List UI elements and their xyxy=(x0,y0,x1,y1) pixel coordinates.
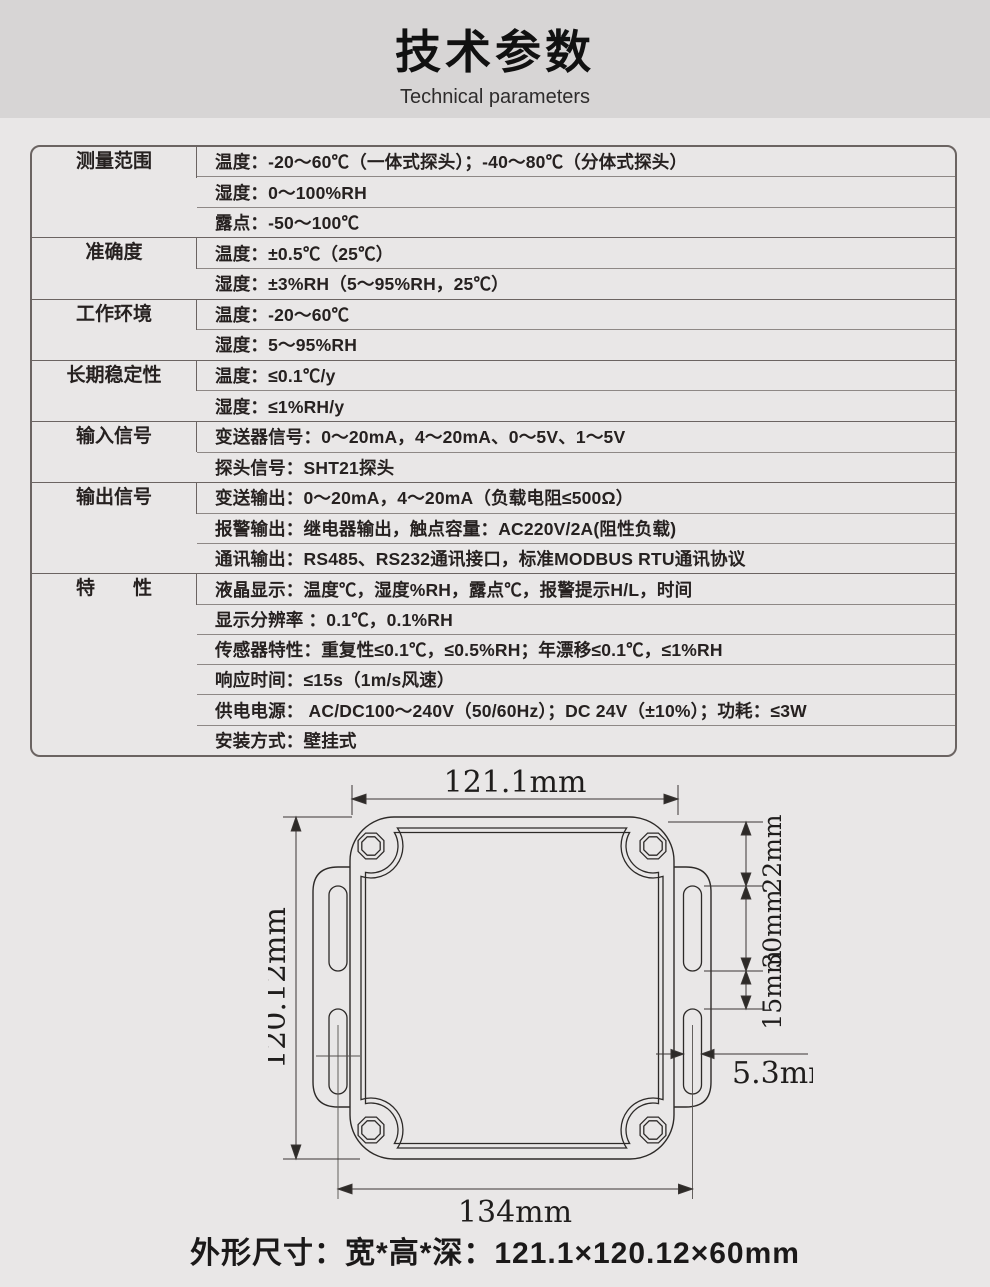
dim-slot-width: 5.3mm xyxy=(732,1056,813,1091)
spec-row: 变送输出：0～20mA，4～20mA（负载电阻≤500Ω） xyxy=(197,483,955,512)
spec-row: 湿度：5～95%RH xyxy=(197,329,955,360)
spec-row: 湿度：±3%RH（5～95%RH，25℃） xyxy=(197,268,955,299)
dim-height-left: 120.12mm xyxy=(268,907,293,1069)
spec-row: 供电电源： AC/DC100～240V（50/60Hz）；DC 24V（±10%… xyxy=(197,694,955,724)
spec-category: 测量范围 xyxy=(32,147,197,178)
spec-row: 响应时间：≤15s（1m/s风速） xyxy=(197,664,955,694)
right-mounting-ear xyxy=(672,867,711,1107)
spec-group-accuracy: 准确度 温度：±0.5℃（25℃） 湿度：±3%RH（5～95%RH，25℃） xyxy=(32,237,955,298)
spec-group-output-signal: 输出信号 变送输出：0～20mA，4～20mA（负载电阻≤500Ω） 报警输出：… xyxy=(32,482,955,573)
dim-seg-15: 15mm xyxy=(758,950,787,1030)
page-title: 技术参数 xyxy=(0,0,990,82)
spec-row: 安装方式：壁挂式 xyxy=(197,725,955,755)
spec-row: 探头信号：SHT21探头 xyxy=(197,452,955,483)
spec-row: 显示分辨率 ：0.1℃，0.1%RH xyxy=(197,604,955,634)
dim-width-top: 121.1mm xyxy=(444,768,587,800)
spec-category: 输入信号 xyxy=(32,422,197,453)
header-band: 技术参数 Technical parameters xyxy=(0,0,990,118)
spec-category: 长期稳定性 xyxy=(32,361,197,392)
dimension-drawing: 121.1mm 120.12mm 22mm 30mm 15mm 5.3mm 13… xyxy=(268,768,813,1240)
device-outline-drawing: 121.1mm 120.12mm 22mm 30mm 15mm 5.3mm 13… xyxy=(268,768,813,1240)
overall-dimensions-label: 外形尺寸：宽*高*深：121.1×120.12×60mm xyxy=(0,1228,990,1272)
spec-category: 特 性 xyxy=(32,574,197,605)
left-mounting-ear xyxy=(313,867,352,1107)
spec-category: 输出信号 xyxy=(32,483,197,514)
spec-group-features: 特 性 液晶显示：温度℃，湿度%RH，露点℃，报警提示H/L，时间 显示分辨率 … xyxy=(32,573,955,755)
spec-row: 温度：-20～60℃ xyxy=(197,300,955,330)
spec-row: 温度：≤0.1℃/y xyxy=(197,361,955,391)
spec-row: 露点：-50～100℃ xyxy=(197,207,955,237)
spec-row: 液晶显示：温度℃，湿度%RH，露点℃，报警提示H/L，时间 xyxy=(197,574,955,603)
dim-seg-22: 22mm xyxy=(758,814,787,894)
spec-row: 温度：±0.5℃（25℃） xyxy=(197,238,955,268)
spec-row: 通讯输出：RS485、RS232通讯接口，标准MODBUS RTU通讯协议 xyxy=(197,543,955,573)
page-subtitle: Technical parameters xyxy=(0,86,990,109)
spec-row: 湿度：≤1%RH/y xyxy=(197,390,955,421)
spec-category: 准确度 xyxy=(32,238,197,269)
spec-group-stability: 长期稳定性 温度：≤0.1℃/y 湿度：≤1%RH/y xyxy=(32,360,955,421)
spec-group-measure-range: 测量范围 温度：-20～60℃（一体式探头）；-40～80℃（分体式探头） 湿度… xyxy=(32,147,955,237)
spec-table: 测量范围 温度：-20～60℃（一体式探头）；-40～80℃（分体式探头） 湿度… xyxy=(30,145,957,757)
spec-row: 变送器信号：0～20mA，4～20mA、0～5V、1～5V xyxy=(197,422,955,452)
device-body xyxy=(350,817,674,1159)
spec-group-input-signal: 输入信号 变送器信号：0～20mA，4～20mA、0～5V、1～5V 探头信号：… xyxy=(32,421,955,482)
spec-category: 工作环境 xyxy=(32,300,197,331)
spec-group-working-env: 工作环境 温度：-20～60℃ 湿度：5～95%RH xyxy=(32,299,955,360)
dim-width-bottom: 134mm xyxy=(458,1195,572,1230)
spec-row: 湿度：0～100%RH xyxy=(197,176,955,206)
technical-parameters-page: 技术参数 Technical parameters 测量范围 温度：-20～60… xyxy=(0,0,990,1287)
spec-row: 温度：-20～60℃（一体式探头）；-40～80℃（分体式探头） xyxy=(197,147,955,176)
spec-row: 传感器特性：重复性≤0.1℃，≤0.5%RH；年漂移≤0.1℃，≤1%RH xyxy=(197,634,955,664)
spec-row: 报警输出：继电器输出，触点容量：AC220V/2A(阻性负载) xyxy=(197,513,955,543)
